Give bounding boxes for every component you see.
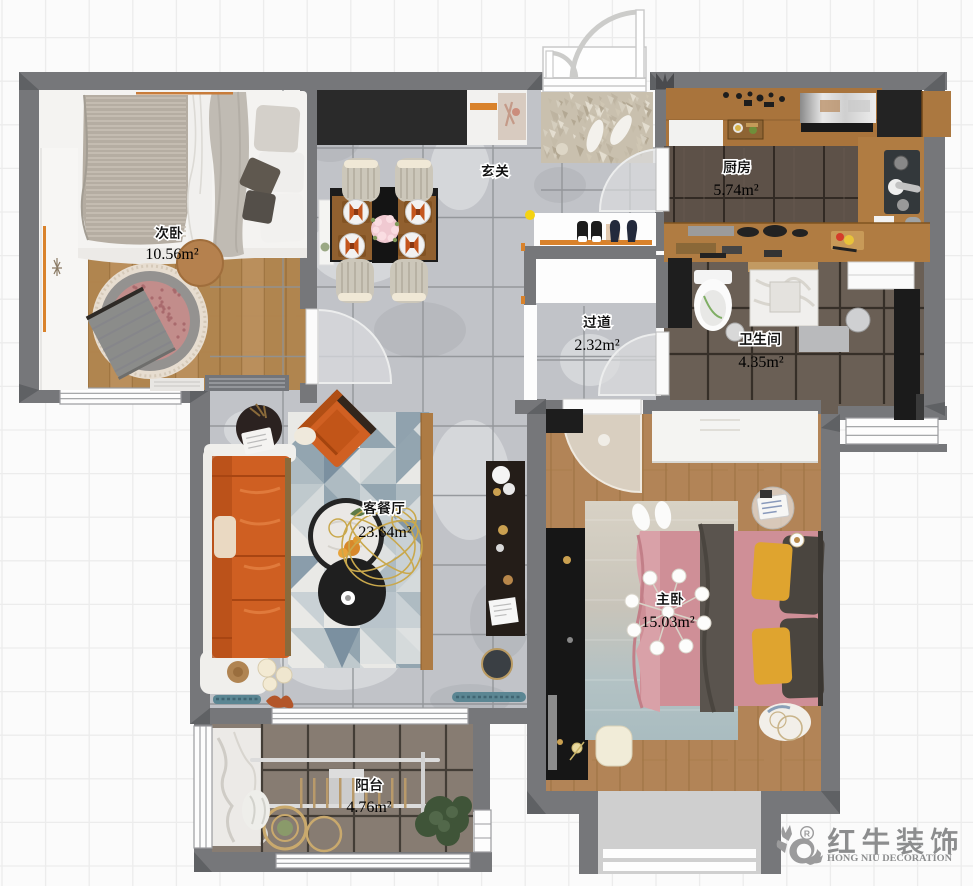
- svg-text:R: R: [804, 829, 810, 839]
- svg-text:4.35m²: 4.35m²: [738, 354, 783, 371]
- svg-text:4.76m²: 4.76m²: [346, 799, 391, 816]
- svg-text:15.03m²: 15.03m²: [641, 614, 694, 631]
- svg-text:2.32m²: 2.32m²: [574, 337, 619, 354]
- svg-text:5.74m²: 5.74m²: [713, 182, 758, 199]
- svg-text:23.64m²: 23.64m²: [358, 524, 411, 541]
- svg-text:10.56m²: 10.56m²: [145, 246, 198, 263]
- svg-text:HONG NIU DECORATION: HONG NIU DECORATION: [827, 853, 953, 863]
